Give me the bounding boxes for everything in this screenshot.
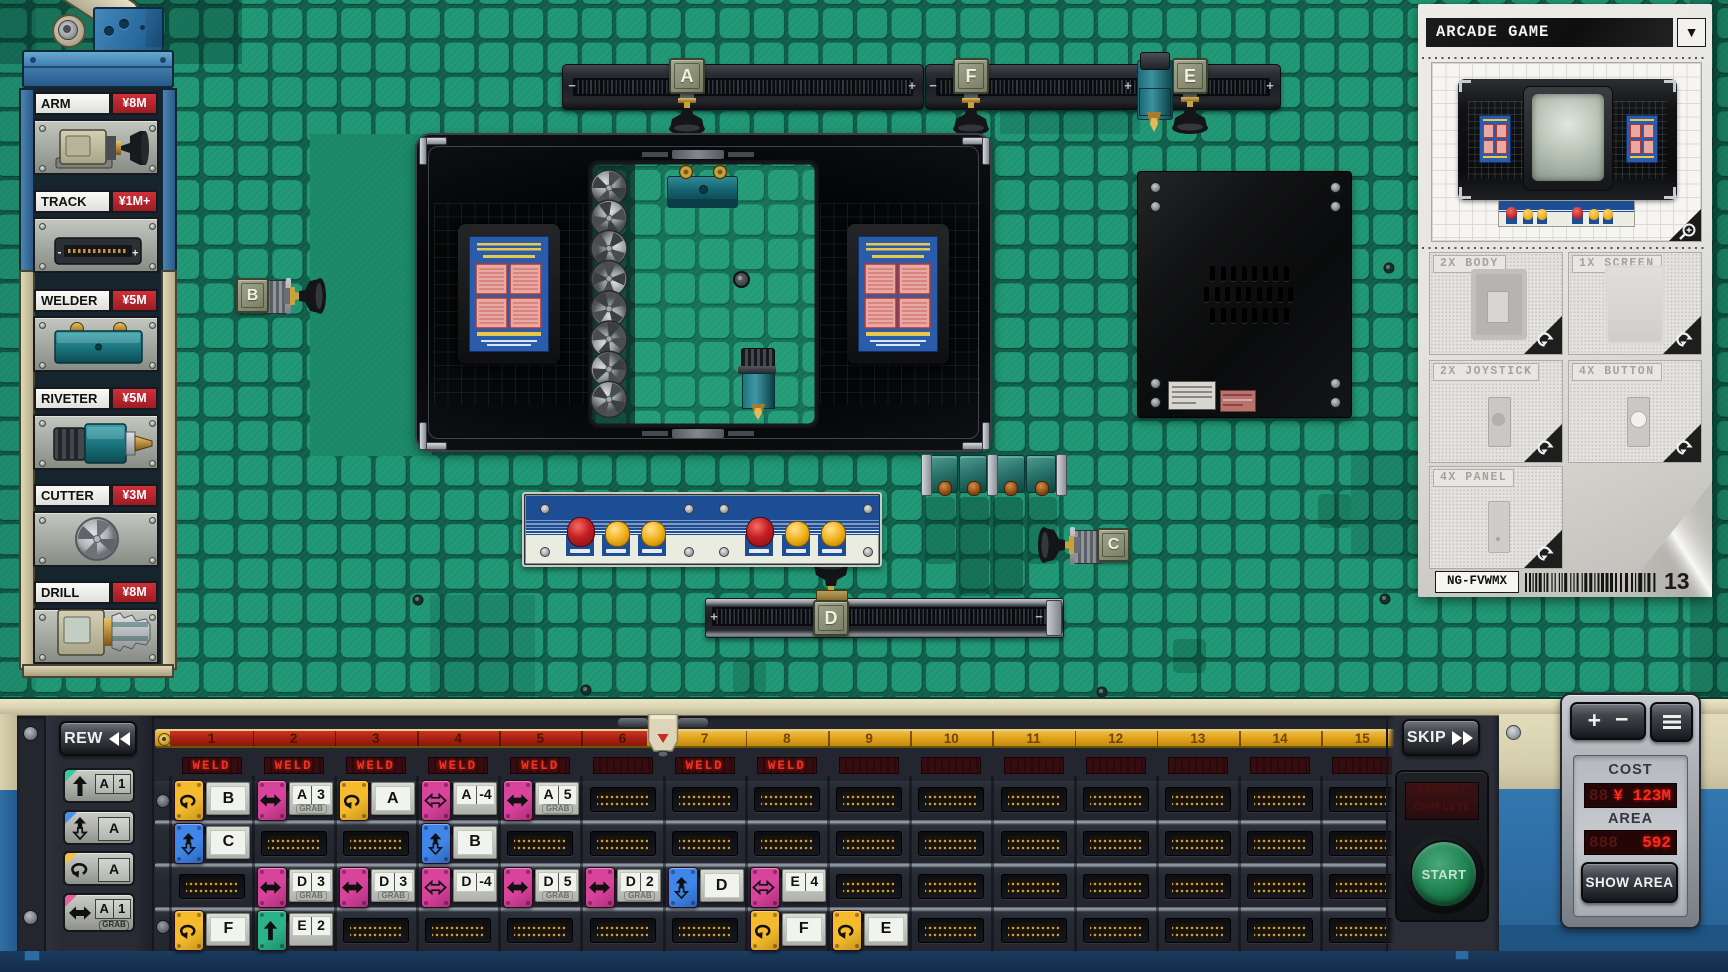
svg-text:+: + (132, 248, 138, 260)
svg-text:-: - (58, 245, 62, 259)
